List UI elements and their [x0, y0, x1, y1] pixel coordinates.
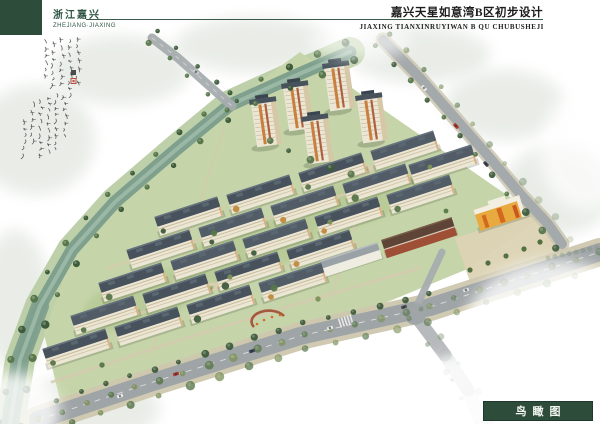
view-label: 鸟瞰图 [516, 403, 567, 419]
presentation-board: 浙江嘉兴 ZHEJIANG·JIAXING 嘉兴天星如意湾B区初步设计 JIAX… [0, 0, 600, 424]
project-title: 嘉兴天星如意湾B区初步设计 [391, 4, 543, 20]
aerial-rendering [0, 0, 600, 424]
calligraphy-inscription [14, 32, 90, 172]
view-label-box: 鸟瞰图 [483, 401, 593, 421]
region-logo-block [0, 0, 42, 35]
region-name-en: ZHEJIANG·JIAXING [53, 23, 116, 29]
project-title-en: JIAXING TIANXINRUYIWAN B QU CHUBUSHEJI [360, 23, 544, 31]
